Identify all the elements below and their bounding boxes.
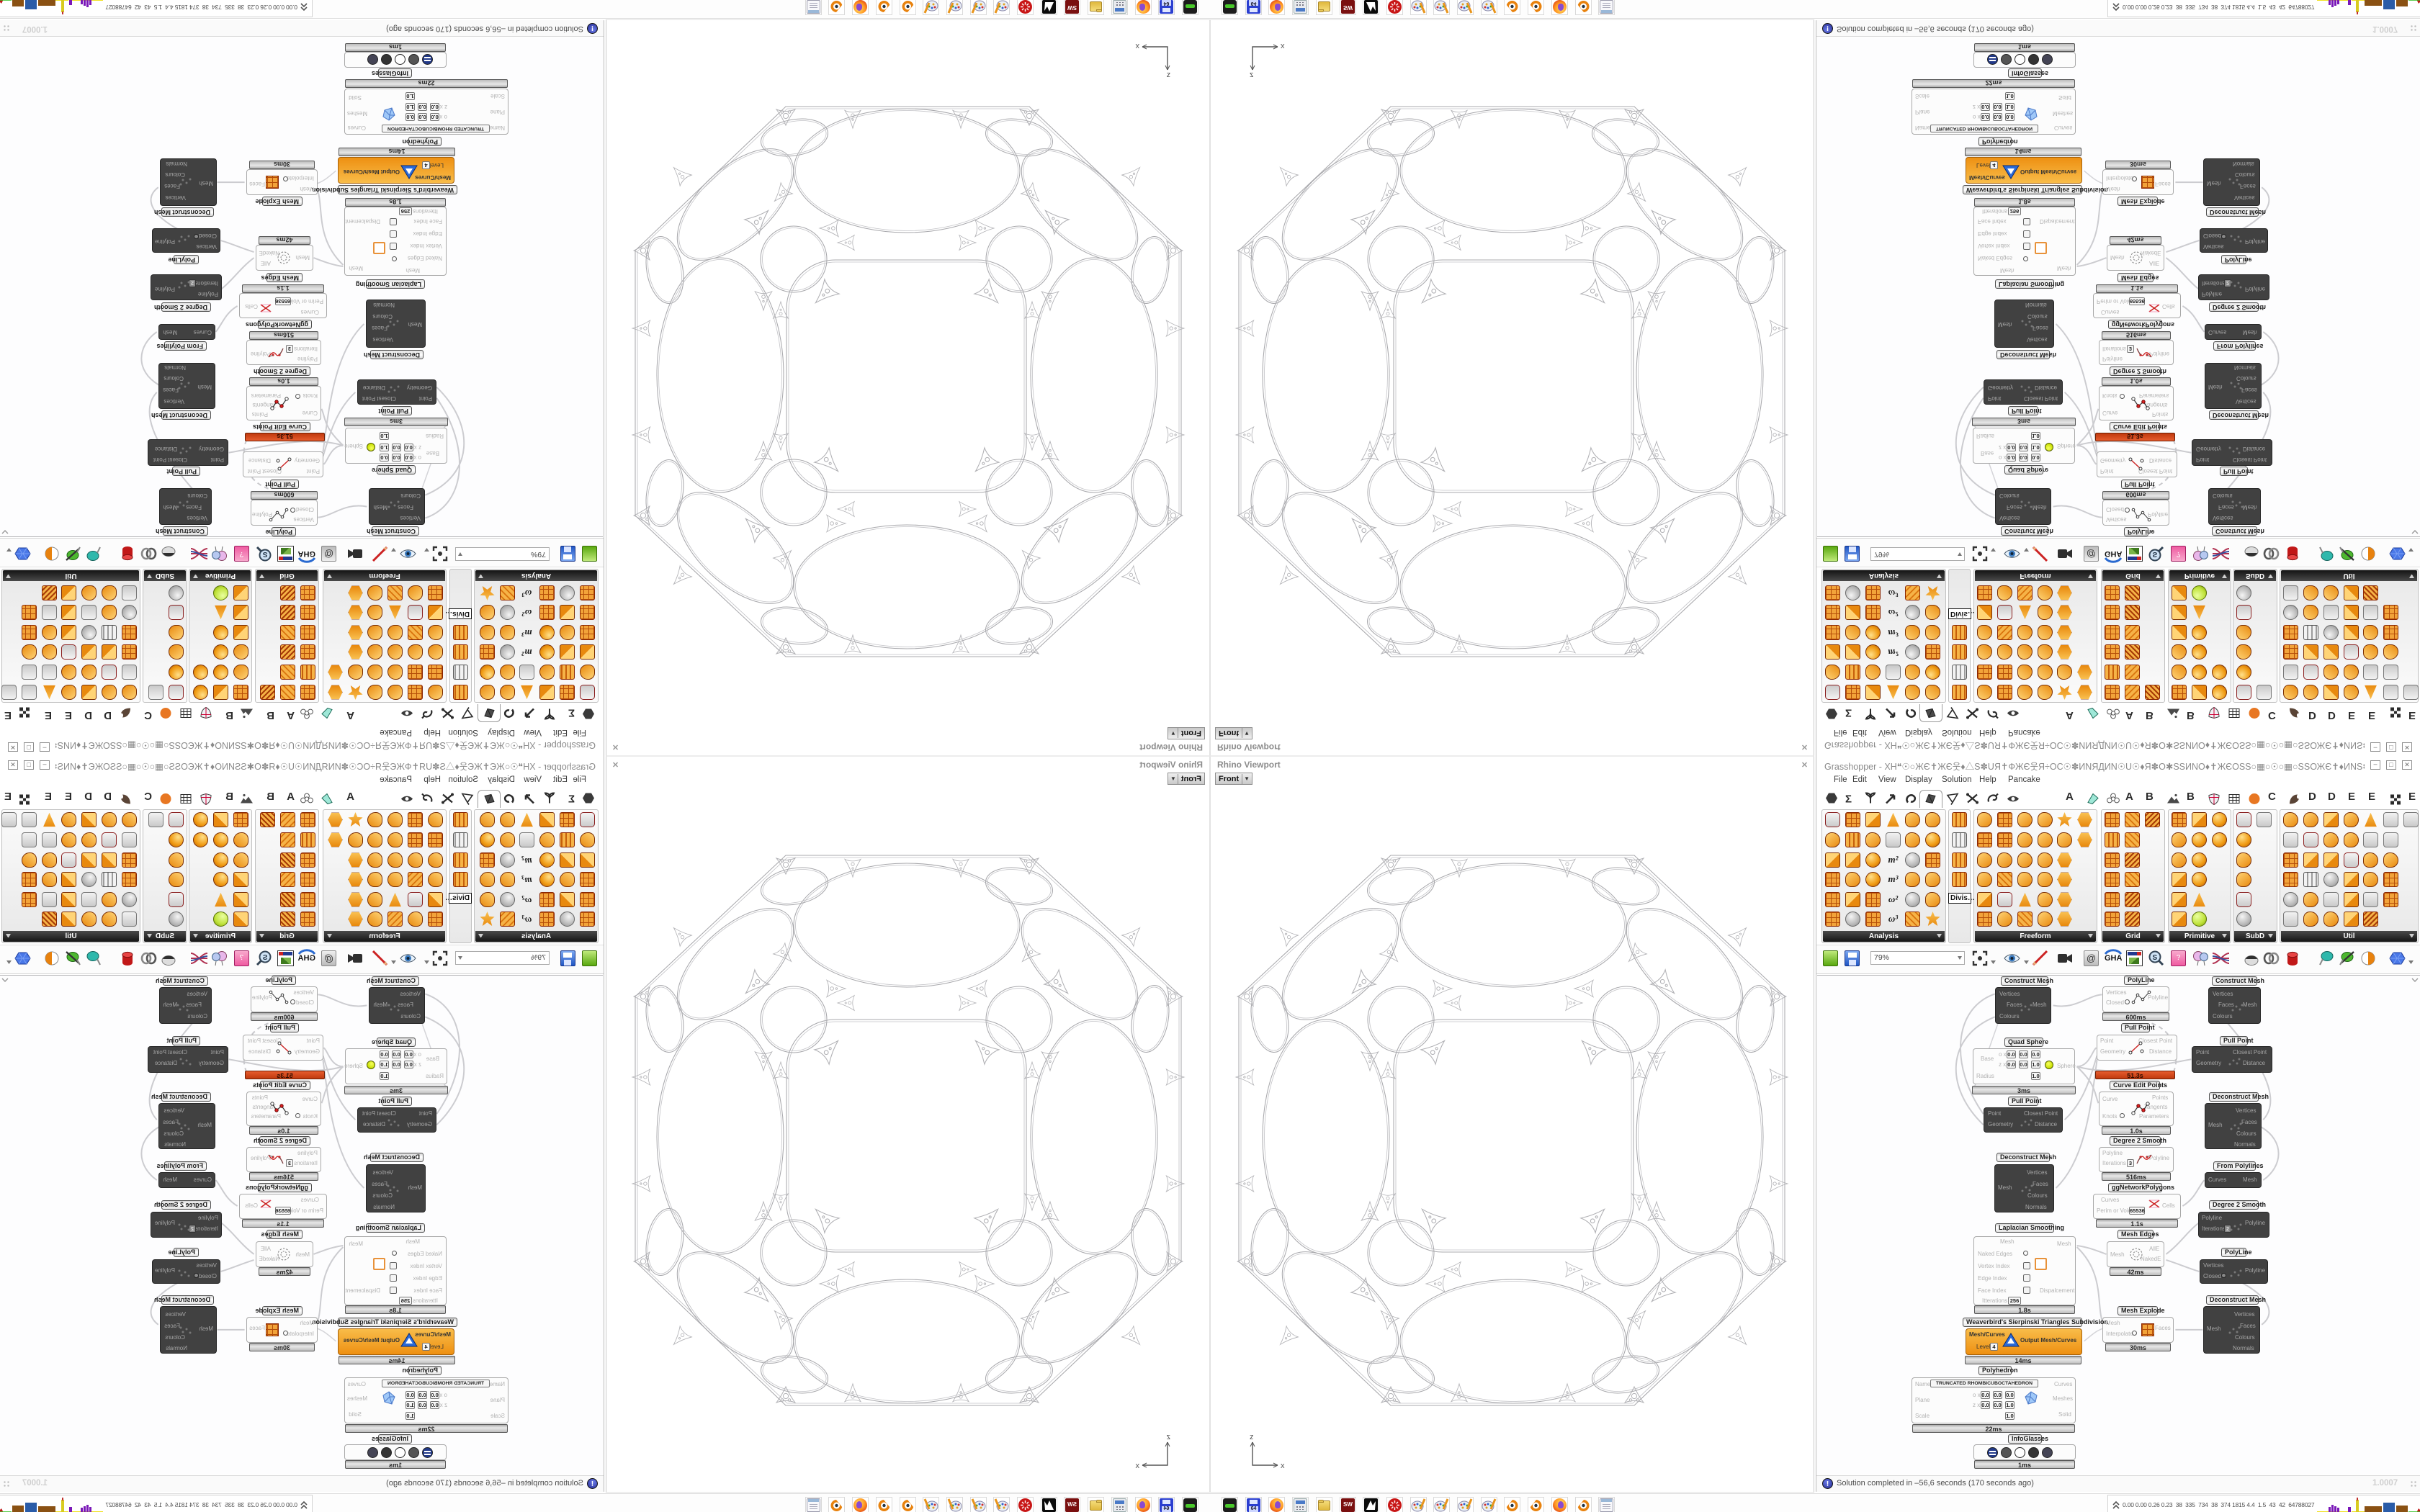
svg-text:z: z [1167, 71, 1171, 79]
svg-text:Σ: Σ [1845, 707, 1852, 719]
svg-text:Σ: Σ [1845, 793, 1852, 806]
svg-text:z: z [1250, 71, 1254, 79]
svg-text:Σ: Σ [568, 707, 575, 719]
svg-text:S: S [263, 954, 268, 962]
svg-text:S: S [263, 550, 268, 558]
svg-text:z: z [1250, 1433, 1254, 1441]
svg-text:x: x [1281, 42, 1285, 50]
svg-text:x: x [1135, 42, 1139, 50]
svg-text:S: S [2153, 954, 2158, 962]
svg-text:Σ: Σ [568, 793, 575, 806]
svg-text:S: S [2153, 550, 2158, 558]
svg-text:x: x [1281, 1462, 1285, 1470]
svg-text:x: x [1135, 1462, 1139, 1470]
svg-text:z: z [1167, 1433, 1171, 1441]
